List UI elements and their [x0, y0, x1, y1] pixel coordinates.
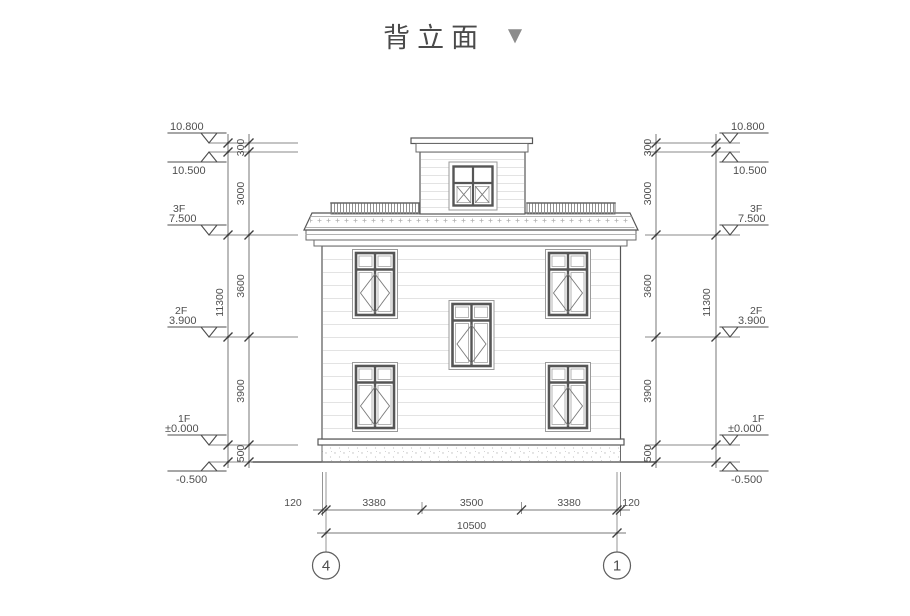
dim-total: 11300	[214, 288, 226, 317]
dim-value: 500	[235, 445, 247, 463]
dim-value: 3500	[460, 497, 484, 509]
dim-value: 3900	[642, 379, 654, 403]
axis-number: 1	[613, 558, 621, 575]
elevation-drawing: 300 3000 3600 3900 500 11300 300 3000 36…	[0, 0, 910, 616]
dim-value: 300	[235, 139, 247, 157]
axis-number: 4	[322, 558, 330, 575]
penthouse-roof-edge	[416, 144, 528, 153]
dim-value: 120	[284, 497, 302, 509]
dim-value: 500	[642, 445, 654, 463]
elevation-value: 7.500	[169, 213, 197, 225]
dim-value: 3600	[642, 274, 654, 298]
elevation-value: 10.800	[731, 121, 765, 133]
grid-bubble-4: 4	[313, 552, 340, 579]
right-dimension-chain: 300 3000 3600 3900 500 11300	[642, 134, 721, 468]
dim-value: 3380	[362, 497, 386, 509]
dim-value: 3000	[642, 182, 654, 206]
dim-value: 3600	[235, 274, 247, 298]
dim-value: 3000	[235, 182, 247, 206]
roof-cornice	[304, 213, 638, 246]
bottom-dimension-chain: 120 3380 3500 3380 120 10500	[284, 472, 640, 552]
elevation-value: ±0.000	[165, 423, 199, 435]
window-1f-left	[353, 363, 398, 432]
window-2f-right	[546, 250, 591, 319]
elevation-value: 10.500	[172, 165, 206, 177]
penthouse-roof-slab	[411, 138, 533, 144]
elevation-value: 10.500	[733, 165, 767, 177]
window-1f-right	[546, 363, 591, 432]
elevation-value: 3.900	[169, 315, 197, 327]
grid-bubble-1: 1	[604, 552, 631, 579]
dim-total: 11300	[701, 288, 713, 317]
elevation-value: 3.900	[738, 315, 766, 327]
rooftop-penthouse	[411, 138, 533, 214]
grid-axis-bubbles: 4 1	[313, 552, 631, 579]
dim-total: 10500	[457, 520, 486, 532]
building-facade	[252, 138, 656, 462]
elevation-value: 10.800	[170, 121, 204, 133]
window-2f-left	[353, 250, 398, 319]
window-stair-center	[449, 301, 494, 370]
elevation-value: 7.500	[738, 213, 766, 225]
left-dimension-chain: 300 3000 3600 3900 500 11300	[214, 134, 254, 468]
plinth-base	[322, 445, 621, 462]
elevation-value: ±0.000	[728, 423, 762, 435]
right-elevation-markers: 10.800 10.500 3F 7.500 2F 3.900 1F ±0.00…	[720, 121, 768, 486]
elevation-value: -0.500	[176, 474, 207, 486]
dim-value: 120	[622, 497, 640, 509]
dim-value: 3380	[557, 497, 581, 509]
elevation-value: -0.500	[731, 474, 762, 486]
belt-course	[318, 439, 624, 445]
dim-value: 300	[642, 139, 654, 157]
dim-value: 3900	[235, 379, 247, 403]
penthouse-window	[449, 162, 497, 210]
elevation-sheet: 背立面 ▼	[0, 0, 910, 616]
